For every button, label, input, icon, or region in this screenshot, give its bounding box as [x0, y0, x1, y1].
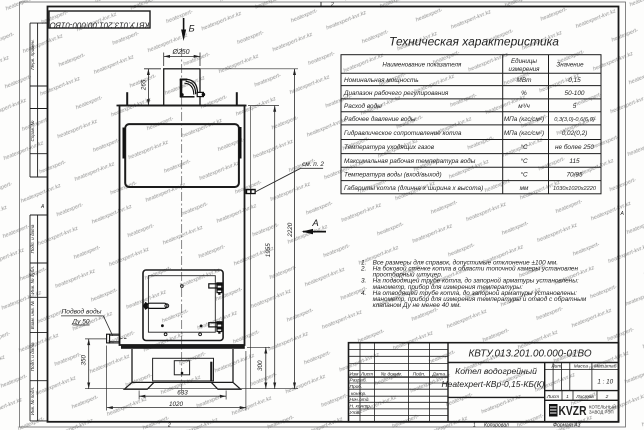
svg-text:Heatexpert-КВр-0,15-КБ(К): Heatexpert-КВр-0,15-КБ(К) — [442, 379, 545, 389]
svg-text:Разраб.: Разраб. — [350, 378, 367, 384]
svg-text:1: 1 — [566, 394, 569, 400]
svg-text:Температура воды (вход/выход): Температура воды (вход/выход) — [344, 171, 442, 179]
svg-text:мм: мм — [520, 185, 529, 192]
svg-text:Габариты котла (длинна х ширин: Габариты котла (длинна х ширина х высота… — [344, 184, 483, 192]
svg-text:Гидравлическое сопротивление к: Гидравлическое сопротивление котла — [344, 129, 462, 137]
svg-text:А: А — [311, 218, 318, 229]
svg-text:м³/ч: м³/ч — [518, 103, 530, 110]
svg-text:Техническая характеристика: Техническая характеристика — [389, 35, 559, 49]
svg-text:КВТУ.013.201.00.000-01ВО: КВТУ.013.201.00.000-01ВО — [50, 21, 150, 30]
svg-text:Взам. инв. №: Взам. инв. № — [30, 301, 35, 329]
svg-text:0,3(3,0)-0,6(6,0): 0,3(3,0)-0,6(6,0) — [554, 117, 595, 123]
svg-text:Диапазон рабочего регулировани: Диапазон рабочего регулирования — [343, 89, 449, 97]
svg-text:МПа (кгс/см²): МПа (кгс/см²) — [504, 130, 544, 137]
svg-text:2: 2 — [330, 2, 334, 8]
svg-text:Справ. №: Справ. № — [30, 121, 35, 142]
svg-text:Лит.: Лит. — [550, 364, 562, 370]
svg-text:1: 1 — [473, 422, 476, 428]
svg-text:°С: °С — [520, 157, 528, 165]
svg-text:1020: 1020 — [169, 401, 184, 408]
svg-text:Изм: Изм — [350, 371, 360, 377]
svg-text:Проб.: Проб. — [350, 384, 363, 390]
svg-text:0,02(0,2): 0,02(0,2) — [562, 130, 588, 137]
svg-text:3.: 3. — [361, 278, 366, 285]
svg-text:Масса: Масса — [574, 364, 589, 370]
svg-text:633: 633 — [177, 390, 188, 397]
svg-text:KVZR: KVZR — [559, 404, 587, 418]
svg-text:см. п. 2: см. п. 2 — [302, 161, 324, 168]
svg-text:Рабочее давление воды: Рабочее давление воды — [344, 115, 416, 123]
svg-text:клапаном Ду не менее 40 мм.: клапаном Ду не менее 40 мм. — [373, 302, 462, 309]
svg-text:2220: 2220 — [287, 222, 294, 238]
svg-text:1 : 10: 1 : 10 — [597, 379, 613, 386]
svg-text:МПа (кгс/см²): МПа (кгс/см²) — [504, 116, 544, 123]
svg-text:МВт: МВт — [517, 77, 533, 84]
svg-text:1955: 1955 — [265, 243, 272, 258]
svg-text:КВТУ.013.201.00.000-01ВО: КВТУ.013.201.00.000-01ВО — [468, 349, 591, 360]
svg-text:265: 265 — [141, 79, 148, 91]
svg-text:0,15: 0,15 — [568, 77, 581, 84]
svg-text:Листов: Листов — [575, 394, 594, 400]
svg-text:Н. контр.: Н. контр. — [350, 404, 372, 410]
svg-text:Перв. примен.: Перв. примен. — [30, 39, 35, 70]
svg-text:Дата: Дата — [431, 371, 445, 377]
svg-text:300: 300 — [257, 360, 264, 371]
svg-text:ЗАВОД РЭП: ЗАВОД РЭП — [589, 410, 614, 415]
svg-text:5: 5 — [573, 103, 577, 110]
svg-text:Температура уходящих газов: Температура уходящих газов — [344, 143, 435, 151]
svg-text:Единицы: Единицы — [511, 58, 537, 65]
svg-text:Расход воды: Расход воды — [344, 102, 382, 110]
svg-text:4.: 4. — [361, 290, 366, 297]
svg-text:Лист: Лист — [360, 371, 373, 377]
svg-text:2: 2 — [167, 423, 171, 429]
svg-text:контр.: контр. — [351, 392, 367, 397]
svg-text:Формат А3: Формат А3 — [553, 422, 581, 428]
svg-text:Лист: Лист — [546, 394, 559, 400]
svg-text:50-100: 50-100 — [565, 90, 585, 97]
svg-text:Максимальная рабочая температу: Максимальная рабочая температура воды — [344, 157, 476, 165]
svg-text:°С: °С — [520, 143, 528, 151]
svg-text:№ докум.: № докум. — [381, 371, 402, 377]
svg-text:Номинальная мощность: Номинальная мощность — [344, 77, 419, 84]
svg-text:Инв. № дубл.: Инв. № дубл. — [30, 266, 35, 294]
svg-text:Ø250: Ø250 — [171, 49, 189, 56]
svg-text:1030х1020х2220: 1030х1020х2220 — [553, 186, 597, 192]
svg-text:А: А — [620, 211, 625, 217]
svg-text:Копировал: Копировал — [484, 422, 509, 428]
svg-text:Котел водогрейный: Котел водогрейный — [455, 366, 537, 376]
svg-text:Значение: Значение — [556, 61, 584, 68]
svg-text:Масштаб: Масштаб — [594, 364, 617, 370]
svg-text:Утв.: Утв. — [350, 410, 361, 416]
svg-text:Подвод воды: Подвод воды — [62, 308, 102, 316]
svg-text:2.: 2. — [360, 266, 366, 273]
svg-text:70/95: 70/95 — [567, 172, 583, 179]
svg-text:Подп. и дата: Подп. и дата — [30, 342, 35, 371]
svg-text:115: 115 — [569, 158, 580, 165]
svg-text:Подп.: Подп. — [413, 371, 426, 377]
svg-text:%: % — [521, 90, 527, 97]
svg-text:Инв. № подл.: Инв. № подл. — [30, 387, 35, 416]
svg-text:Б: Б — [189, 24, 195, 35]
svg-text:350: 350 — [81, 354, 88, 365]
svg-text:Подп. и дата: Подп. и дата — [30, 224, 35, 253]
svg-text:измерения: измерения — [509, 66, 541, 73]
svg-text:А: А — [40, 204, 45, 210]
svg-text:Нач.отд.: Нач.отд. — [350, 397, 370, 403]
svg-text:°С: °С — [520, 171, 528, 179]
svg-text:Ду 50: Ду 50 — [71, 318, 90, 325]
svg-text:не более 250: не более 250 — [555, 143, 594, 151]
svg-text:Наименование показателя: Наименование показателя — [382, 61, 462, 68]
svg-text:2: 2 — [605, 394, 609, 400]
